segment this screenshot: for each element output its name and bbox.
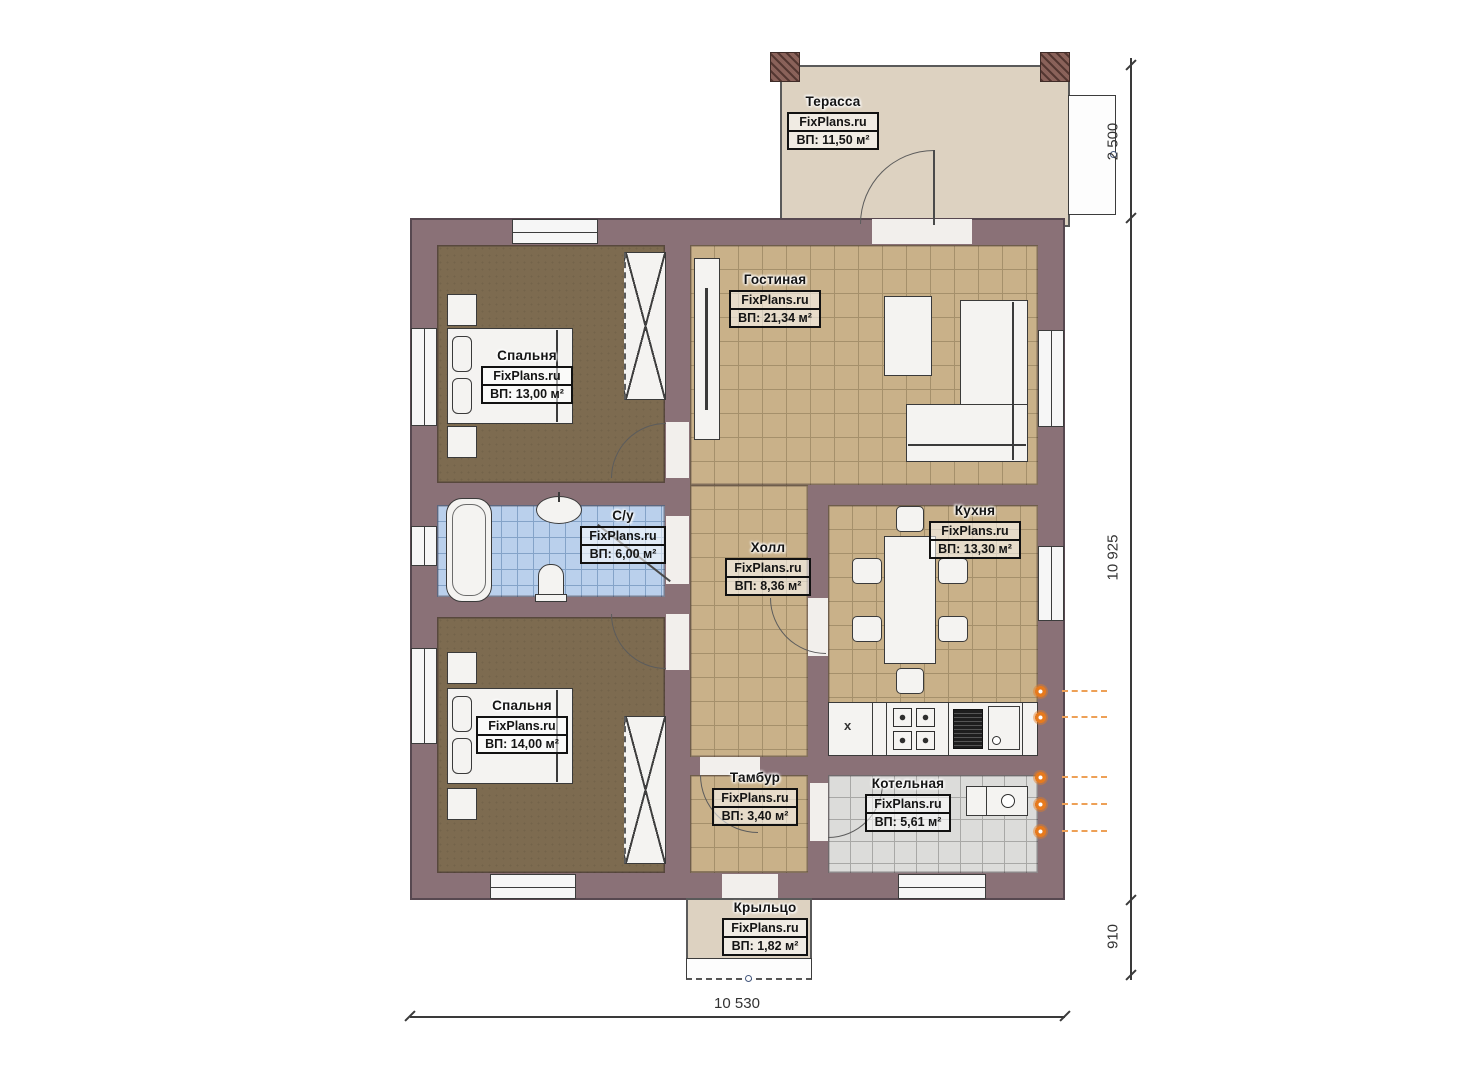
- dining-chair-bottom: [896, 668, 924, 694]
- room-name: Спальня: [457, 698, 587, 713]
- radiator-icon: [1033, 684, 1048, 699]
- room-area: ВП: 6,00 м²: [582, 546, 663, 562]
- room-area: ВП: 11,50 м²: [789, 132, 876, 148]
- door-gap-bedroom1: [666, 422, 689, 478]
- room-label-living: Гостиная FixPlans.ru ВП: 21,34 м²: [710, 272, 840, 328]
- bedroom1-nightstand-bottom: [447, 426, 477, 458]
- tv-icon: [705, 288, 708, 410]
- terrace-post-right: [1040, 52, 1070, 82]
- room-name: Котельная: [843, 776, 973, 791]
- room-area: ВП: 5,61 м²: [867, 814, 948, 830]
- room-label-hall: Холл FixPlans.ru ВП: 8,36 м²: [703, 540, 833, 596]
- toilet-tank: [535, 594, 567, 602]
- dimension-line-bottom: [410, 1016, 1065, 1018]
- boiler-unit: [966, 786, 1028, 816]
- brand-text: FixPlans.ru: [582, 528, 663, 546]
- stove-burner: [893, 708, 912, 727]
- boiler-divider: [986, 787, 987, 815]
- room-name: Крыльцо: [700, 900, 830, 915]
- dish-rack: [953, 709, 983, 749]
- porch-steps-dot: [745, 975, 752, 982]
- room-area: ВП: 14,00 м²: [478, 736, 566, 752]
- room-name: Терасса: [768, 94, 898, 109]
- radiator-pipe: [1062, 803, 1107, 805]
- brand-text: FixPlans.ru: [478, 718, 566, 736]
- door-leaf-terrace: [933, 150, 935, 225]
- boiler-dial: [1001, 794, 1015, 808]
- room-name: Холл: [703, 540, 833, 555]
- room-name: Тамбур: [690, 770, 820, 785]
- window-bedroom1-top: [512, 219, 598, 244]
- room-label-bedroom2: Спальня FixPlans.ru ВП: 14,00 м²: [457, 698, 587, 754]
- brand-text: FixPlans.ru: [724, 920, 805, 938]
- brand-text: FixPlans.ru: [789, 114, 876, 132]
- window-bedroom2-bottom: [490, 874, 576, 899]
- bathtub-inner: [452, 504, 486, 596]
- window-bedroom2-left: [411, 648, 437, 744]
- radiator-icon: [1033, 770, 1048, 785]
- dimension-line-right: [1130, 58, 1132, 980]
- bedroom1-wardrobe: [624, 252, 666, 400]
- counter-divider: [872, 703, 873, 755]
- radiator-icon: [1033, 797, 1048, 812]
- dimension-building-width: 10 530: [677, 995, 797, 1012]
- bedroom2-nightstand-bottom: [447, 788, 477, 820]
- stove-burner: [916, 708, 935, 727]
- dining-chair-left: [852, 558, 882, 584]
- room-area: ВП: 13,30 м²: [931, 541, 1019, 557]
- room-area: ВП: 1,82 м²: [724, 938, 805, 954]
- coffee-table: [884, 296, 932, 376]
- toilet: [538, 564, 564, 598]
- floor-plan-canvas: 2 500 10 925 910 10 530: [0, 0, 1473, 1080]
- counter-cross-mark: x: [844, 718, 851, 733]
- radiator-pipe: [1062, 690, 1107, 692]
- room-area: ВП: 8,36 м²: [727, 578, 808, 594]
- room-area: ВП: 21,34 м²: [731, 310, 819, 326]
- room-label-boiler: Котельная FixPlans.ru ВП: 5,61 м²: [843, 776, 973, 832]
- terrace-post-left: [770, 52, 800, 82]
- door-gap-bedroom2: [666, 614, 689, 670]
- dining-chair-left: [852, 616, 882, 642]
- window-boiler-bottom: [898, 874, 986, 899]
- room-label-kitchen: Кухня FixPlans.ru ВП: 13,30 м²: [910, 503, 1040, 559]
- room-name: Гостиная: [710, 272, 840, 287]
- room-name: Кухня: [910, 503, 1040, 518]
- dining-chair-right: [938, 558, 968, 584]
- room-label-vestibule: Тамбур FixPlans.ru ВП: 3,40 м²: [690, 770, 820, 826]
- counter-divider: [948, 703, 949, 755]
- bedroom2-nightstand-top: [447, 652, 477, 684]
- room-label-bathroom: С/у FixPlans.ru ВП: 6,00 м²: [558, 508, 688, 564]
- brand-text: FixPlans.ru: [727, 560, 808, 578]
- dimension-building-height: 10 925: [1105, 513, 1122, 603]
- counter-divider: [886, 703, 887, 755]
- dining-chair-right: [938, 616, 968, 642]
- bedroom1-nightstand-top: [447, 294, 477, 326]
- radiator-icon: [1033, 710, 1048, 725]
- stove-burner: [893, 731, 912, 750]
- room-area: ВП: 3,40 м²: [714, 808, 795, 824]
- room-area: ВП: 13,00 м²: [483, 386, 571, 402]
- bedroom2-wardrobe: [624, 716, 666, 864]
- window-bathroom-left: [411, 526, 437, 566]
- kitchen-sink-drain: [992, 736, 1001, 745]
- radiator-pipe: [1062, 830, 1107, 832]
- brand-text: FixPlans.ru: [867, 796, 948, 814]
- sofa-chaise: [906, 404, 1028, 462]
- radiator-icon: [1033, 824, 1048, 839]
- brand-text: FixPlans.ru: [931, 523, 1019, 541]
- radiator-pipe: [1062, 716, 1107, 718]
- room-label-porch: Крыльцо FixPlans.ru ВП: 1,82 м²: [700, 900, 830, 956]
- room-name: Спальня: [462, 348, 592, 363]
- room-name: С/у: [558, 508, 688, 523]
- brand-text: FixPlans.ru: [731, 292, 819, 310]
- window-kitchen-right: [1038, 546, 1064, 621]
- room-label-terrace: Терасса FixPlans.ru ВП: 11,50 м²: [768, 94, 898, 150]
- sofa-back-line: [1012, 302, 1014, 460]
- stove-burner: [916, 731, 935, 750]
- window-living-right: [1038, 330, 1064, 427]
- room-label-bedroom1: Спальня FixPlans.ru ВП: 13,00 м²: [462, 348, 592, 404]
- dimension-porch-height: 910: [1105, 892, 1122, 982]
- bathroom-sink-tap: [558, 492, 560, 502]
- dimension-terrace-height: 2 500: [1105, 97, 1122, 187]
- radiator-pipe: [1062, 776, 1107, 778]
- sofa-seat-line: [908, 444, 1026, 446]
- window-bedroom1-left: [411, 328, 437, 426]
- door-gap-entrance: [722, 874, 778, 899]
- brand-text: FixPlans.ru: [483, 368, 571, 386]
- brand-text: FixPlans.ru: [714, 790, 795, 808]
- counter-divider: [1022, 703, 1023, 755]
